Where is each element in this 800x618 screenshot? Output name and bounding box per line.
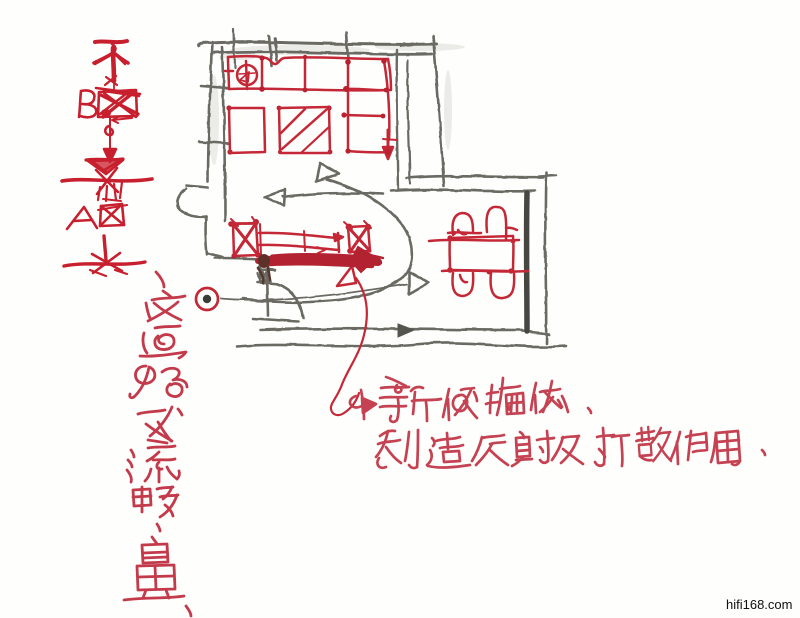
svg-text:hifi168.com: hifi168.com [726,597,792,612]
